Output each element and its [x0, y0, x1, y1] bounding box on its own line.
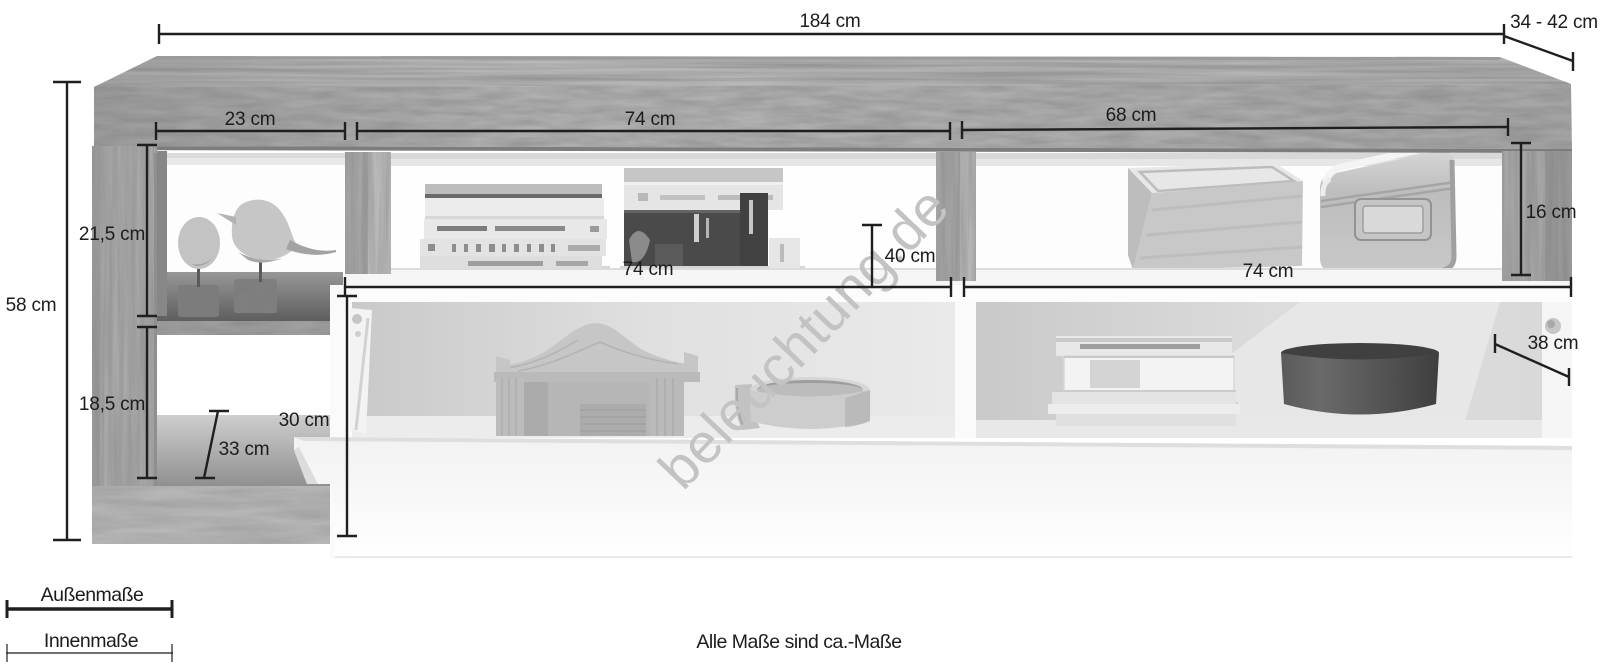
svg-text:16 cm: 16 cm	[1526, 202, 1577, 223]
svg-text:Außenmaße: Außenmaße	[41, 584, 144, 606]
svg-text:74 cm: 74 cm	[1243, 261, 1294, 282]
svg-text:21,5 cm: 21,5 cm	[79, 224, 145, 245]
svg-text:23 cm: 23 cm	[225, 109, 276, 130]
svg-text:38 cm: 38 cm	[1528, 333, 1579, 354]
svg-text:184 cm: 184 cm	[799, 11, 860, 32]
svg-text:Alle Maße sind ca.-Maße: Alle Maße sind ca.-Maße	[696, 631, 901, 653]
svg-text:58 cm: 58 cm	[6, 295, 57, 316]
svg-text:30 cm: 30 cm	[279, 410, 330, 431]
svg-text:68 cm: 68 cm	[1106, 105, 1157, 126]
svg-text:34 - 42 cm: 34 - 42 cm	[1510, 12, 1598, 33]
svg-text:18,5 cm: 18,5 cm	[79, 394, 145, 415]
svg-text:Innenmaße: Innenmaße	[44, 630, 138, 652]
svg-text:74 cm: 74 cm	[623, 259, 674, 280]
svg-text:40 cm: 40 cm	[885, 246, 936, 267]
svg-text:33 cm: 33 cm	[219, 439, 270, 460]
svg-text:74 cm: 74 cm	[625, 109, 676, 130]
